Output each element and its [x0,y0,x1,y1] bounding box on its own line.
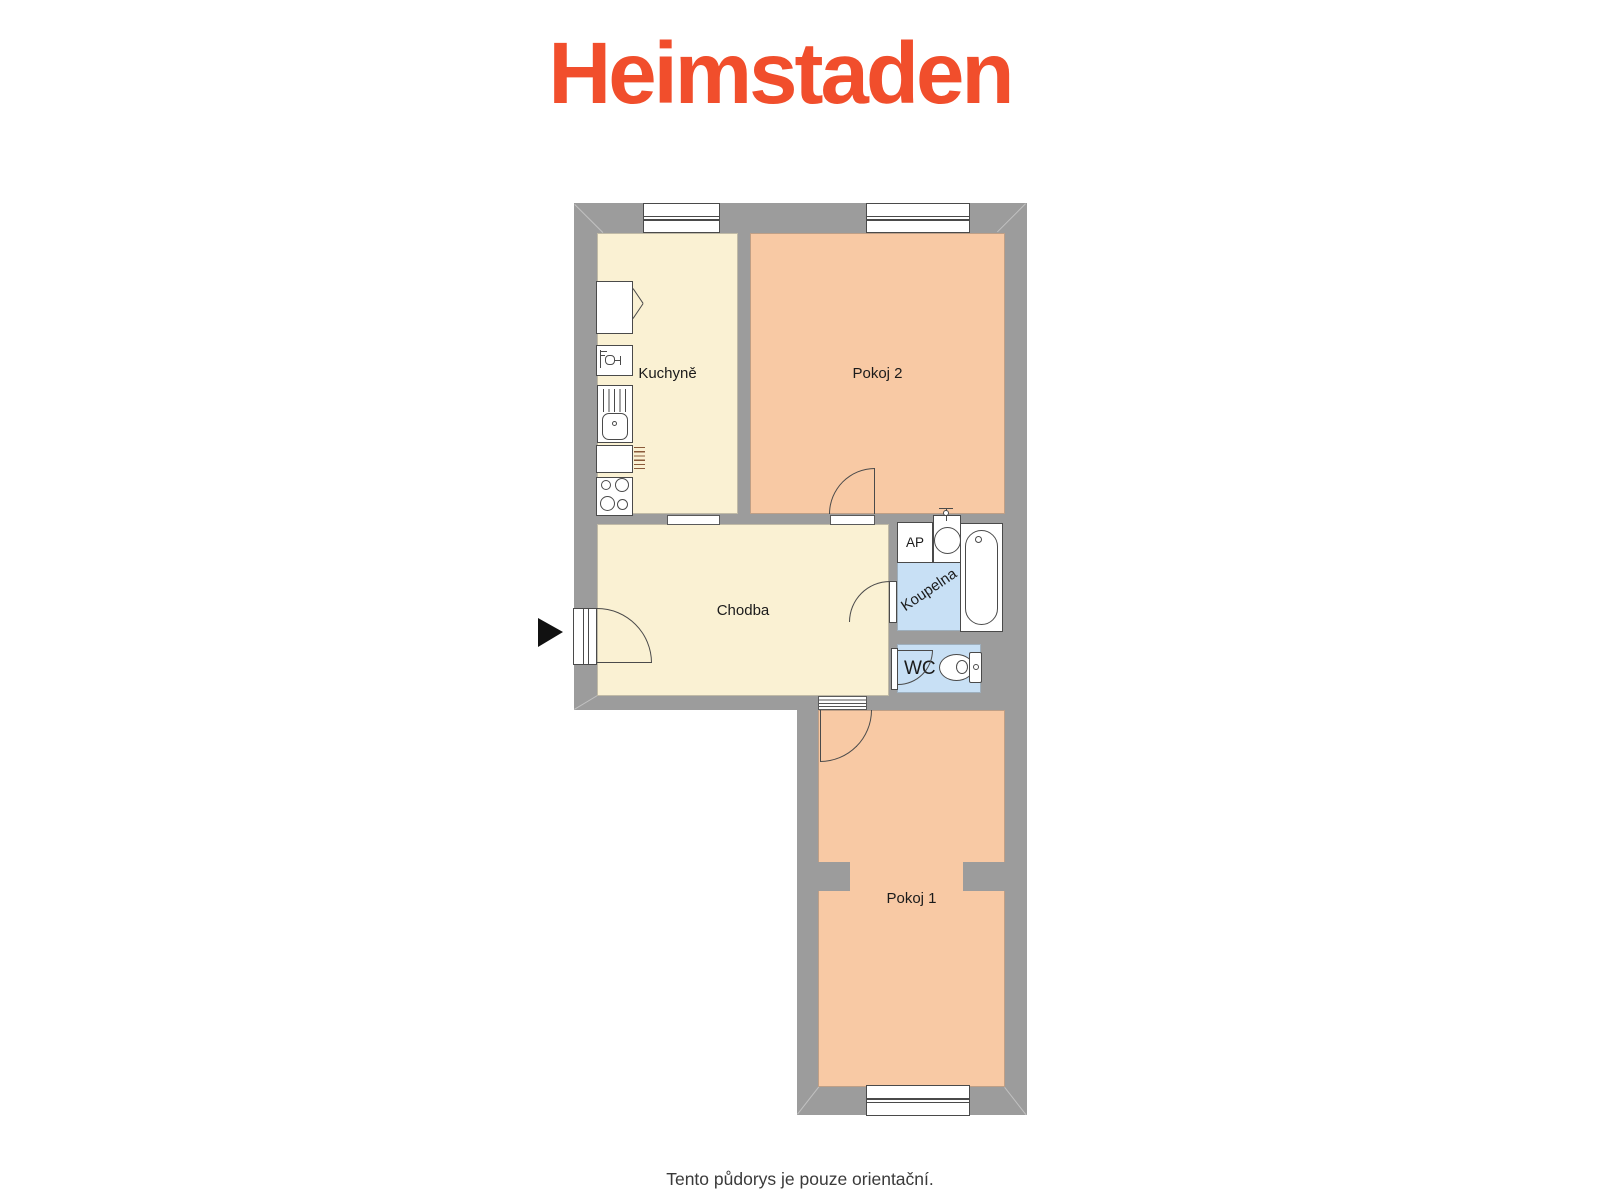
room-pokoj1: Pokoj 1 [818,710,1005,1087]
washbasin-icon [934,527,961,554]
entrance-door-frame [573,608,597,665]
wall-stub-right [963,862,1005,891]
entrance-arrow-icon [538,618,563,647]
room-label-pokoj1: Pokoj 1 [886,890,936,907]
wall-stub-left [818,862,850,891]
koupelna-door-frame [889,581,897,623]
washing-machine-box: AP [897,522,933,563]
opening-kitchen-chodba [667,515,720,525]
window-pokoj2-icon [866,203,970,233]
fridge-icon [596,281,633,334]
caption: Tento půdorys je pouze orientační. [0,1169,1600,1190]
room-pokoj2: Pokoj 2 [750,233,1005,514]
window-kitchen-icon [643,203,720,233]
room-label-pokoj2: Pokoj 2 [852,365,902,382]
wc-door-frame [891,648,898,690]
bathtub-inner [965,530,998,625]
floor-plan: Kuchyně Pokoj 2 Chodba Koupelna WC Pokoj… [0,0,1600,1200]
toilet-bowl-inner [956,660,968,674]
threshold-pokoj1-door [818,696,867,710]
bathtub-drain [975,536,982,543]
room-chodba: Chodba [597,524,889,696]
toilet-tank-knob [973,664,979,670]
sink-drainer-lines [603,389,628,412]
room-label-kitchen: Kuchyně [638,365,696,382]
threshold-pokoj2-door [830,515,875,525]
sink-basin [602,413,628,440]
counter-hatch [634,447,645,471]
window-pokoj1-icon [866,1085,970,1116]
kitchen-counter-icon [596,445,633,473]
room-label-chodba: Chodba [717,602,770,619]
washing-machine-label: AP [906,535,924,550]
